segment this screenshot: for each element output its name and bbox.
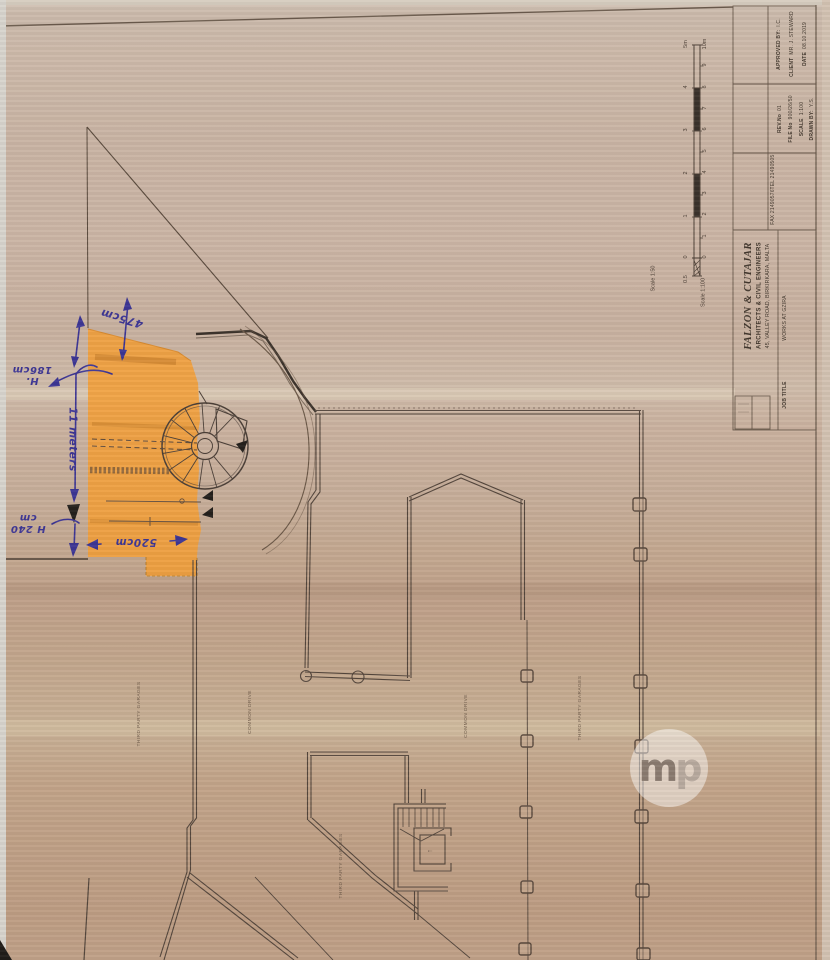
scale-tick: 0.5 xyxy=(683,271,689,287)
firm-address: 45, VALLEY ROAD, BIRKIRKARA, MALTA xyxy=(765,216,773,376)
field-label: APPROVED BY: xyxy=(777,30,783,70)
scale-tick: 1 xyxy=(702,228,708,244)
field-revno: REV.No01 xyxy=(777,88,785,150)
sheet-right-edge xyxy=(822,0,830,960)
field-value: 900/26/50 xyxy=(789,95,795,119)
field-value: I.C. xyxy=(777,18,783,27)
field-value: 1:100 xyxy=(800,102,806,116)
field-approved: APPROVED BY:I.C. xyxy=(776,7,784,81)
dim-520cm: 520cm xyxy=(101,535,171,548)
scale-tick: 0 xyxy=(702,249,708,265)
dim-11-meters: 11 meters xyxy=(66,380,79,500)
scale-tick: 5m xyxy=(683,36,689,52)
mp-watermark: mp xyxy=(630,729,708,807)
field-date: DATE08.10.2019 xyxy=(802,7,810,81)
scale-tick: 2 xyxy=(683,165,689,181)
dim-240cm: H 240 cm xyxy=(6,510,50,536)
scale-tick: 4 xyxy=(702,164,708,180)
lift-up-mark: ↑ xyxy=(427,845,435,857)
scale-tick: 2 xyxy=(702,206,708,222)
area-label-common-drive: COMMON DRIVE xyxy=(463,681,471,751)
scale-100-label: Scale 1:100 xyxy=(700,266,709,320)
job-title-label: JOB TITLE xyxy=(782,375,790,415)
field-drawnby: DRAWN BY:Y.S. xyxy=(809,88,817,150)
scale-tick: 3 xyxy=(683,122,689,138)
field-client: CLIENTMR. J. STEWARD xyxy=(789,7,797,81)
area-label-common-drive: COMMON DRIVE xyxy=(247,677,255,747)
fax-line: FAX 21490576 xyxy=(770,180,778,234)
boundary-wall-bold xyxy=(196,331,316,415)
scale-50-label: Scale 1:50 xyxy=(650,254,659,304)
field-value: MR. J. STEWARD xyxy=(790,11,796,54)
field-value: Y.S. xyxy=(810,98,816,108)
watermark-p: p xyxy=(675,746,699,790)
area-label-third-party-garages: THIRD PARTY GARAGES xyxy=(338,831,346,901)
field-label: DRAWN BY: xyxy=(810,110,816,140)
field-label: DATE xyxy=(803,52,809,66)
area-label-third-party-garages: THIRD PARTY GARAGES xyxy=(577,673,585,743)
watermark-m: m xyxy=(639,746,676,790)
field-value: 08.10.2019 xyxy=(803,22,809,49)
job-title-value: WORKS AT GZIRA xyxy=(782,283,790,353)
scale-tick: 9 xyxy=(702,57,708,73)
scan-corner-artifact xyxy=(0,940,12,960)
scale-tick: 10m xyxy=(702,36,708,52)
firm-name: FALZON & CUTAJAR xyxy=(742,216,756,376)
ramp-curve xyxy=(240,326,315,554)
scale-tick: 8 xyxy=(702,79,708,95)
field-label: SCALE xyxy=(800,118,806,136)
scale-tick: 0 xyxy=(683,249,689,265)
field-value: 01 xyxy=(778,105,784,111)
scale-tick: 3 xyxy=(702,185,708,201)
scanned-plan-sheet: FALZON & CUTAJAR ARCHITECTS & CIVIL ENGI… xyxy=(0,0,830,960)
scale-tick: 5 xyxy=(702,143,708,159)
field-label: REV.No xyxy=(778,114,784,133)
field-fileno: FILE No900/26/50 xyxy=(788,88,796,150)
stairwell-lift xyxy=(394,789,451,920)
field-label: CLIENT xyxy=(790,58,796,77)
dim-186cm: H. 186cm xyxy=(5,362,59,388)
area-label-third-party-garages: THIRD PARTY GARAGES xyxy=(136,679,144,749)
field-label: FILE No xyxy=(789,122,795,142)
field-scale: SCALE1:100 xyxy=(799,88,807,150)
scale-tick: 6 xyxy=(702,121,708,137)
scale-tick: 4 xyxy=(683,79,689,95)
sheet-left-edge xyxy=(0,0,6,960)
scale-tick: 7 xyxy=(702,100,708,116)
firm-subtitle: ARCHITECTS & CIVIL ENGINEERS xyxy=(756,216,765,376)
scale-tick: 1 xyxy=(683,208,689,224)
